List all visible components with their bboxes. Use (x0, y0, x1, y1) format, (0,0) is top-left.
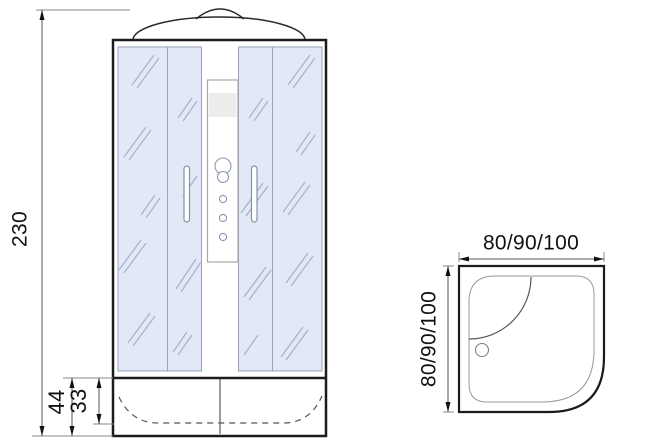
plan-width-dimension-label: 80/90/100 (483, 233, 579, 254)
door-handle-right (252, 166, 258, 222)
shower-head-icon (215, 158, 231, 183)
shower-column (208, 80, 239, 262)
arrow-down-icon (97, 414, 102, 424)
arrow-right-icon (594, 257, 604, 262)
dimension-plan-width (459, 257, 604, 262)
plan-depth-dimension-label: 80/90/100 (419, 291, 440, 387)
control-knobs (219, 195, 226, 240)
dimension-tray-depth-33 (97, 378, 102, 424)
arrow-down-icon (70, 426, 75, 436)
arrow-up-icon (446, 266, 451, 276)
shower-cabin-technical-drawing: 230 44 33 80/90/100 80/90/100 (0, 0, 650, 448)
plan-view (459, 266, 604, 412)
column-band (209, 93, 237, 117)
tray-outline (459, 266, 604, 412)
arrow-up-icon (40, 10, 45, 20)
dimension-plan-depth (446, 266, 451, 412)
drawing-svg (0, 0, 650, 448)
dome-roof (133, 17, 305, 40)
door-handle-left (184, 166, 190, 222)
dimension-height-230 (40, 10, 45, 436)
front-view (113, 9, 326, 436)
drain (476, 344, 489, 357)
arrow-down-icon (446, 402, 451, 412)
base-height-dimension-label: 44 (46, 389, 68, 414)
tray-depth-dimension-label: 33 (68, 388, 90, 413)
arrow-up-icon (97, 378, 102, 388)
arrow-down-icon (40, 426, 45, 436)
arrow-left-icon (459, 257, 469, 262)
arrow-up-icon (70, 378, 75, 388)
height-dimension-label: 230 (10, 211, 31, 247)
